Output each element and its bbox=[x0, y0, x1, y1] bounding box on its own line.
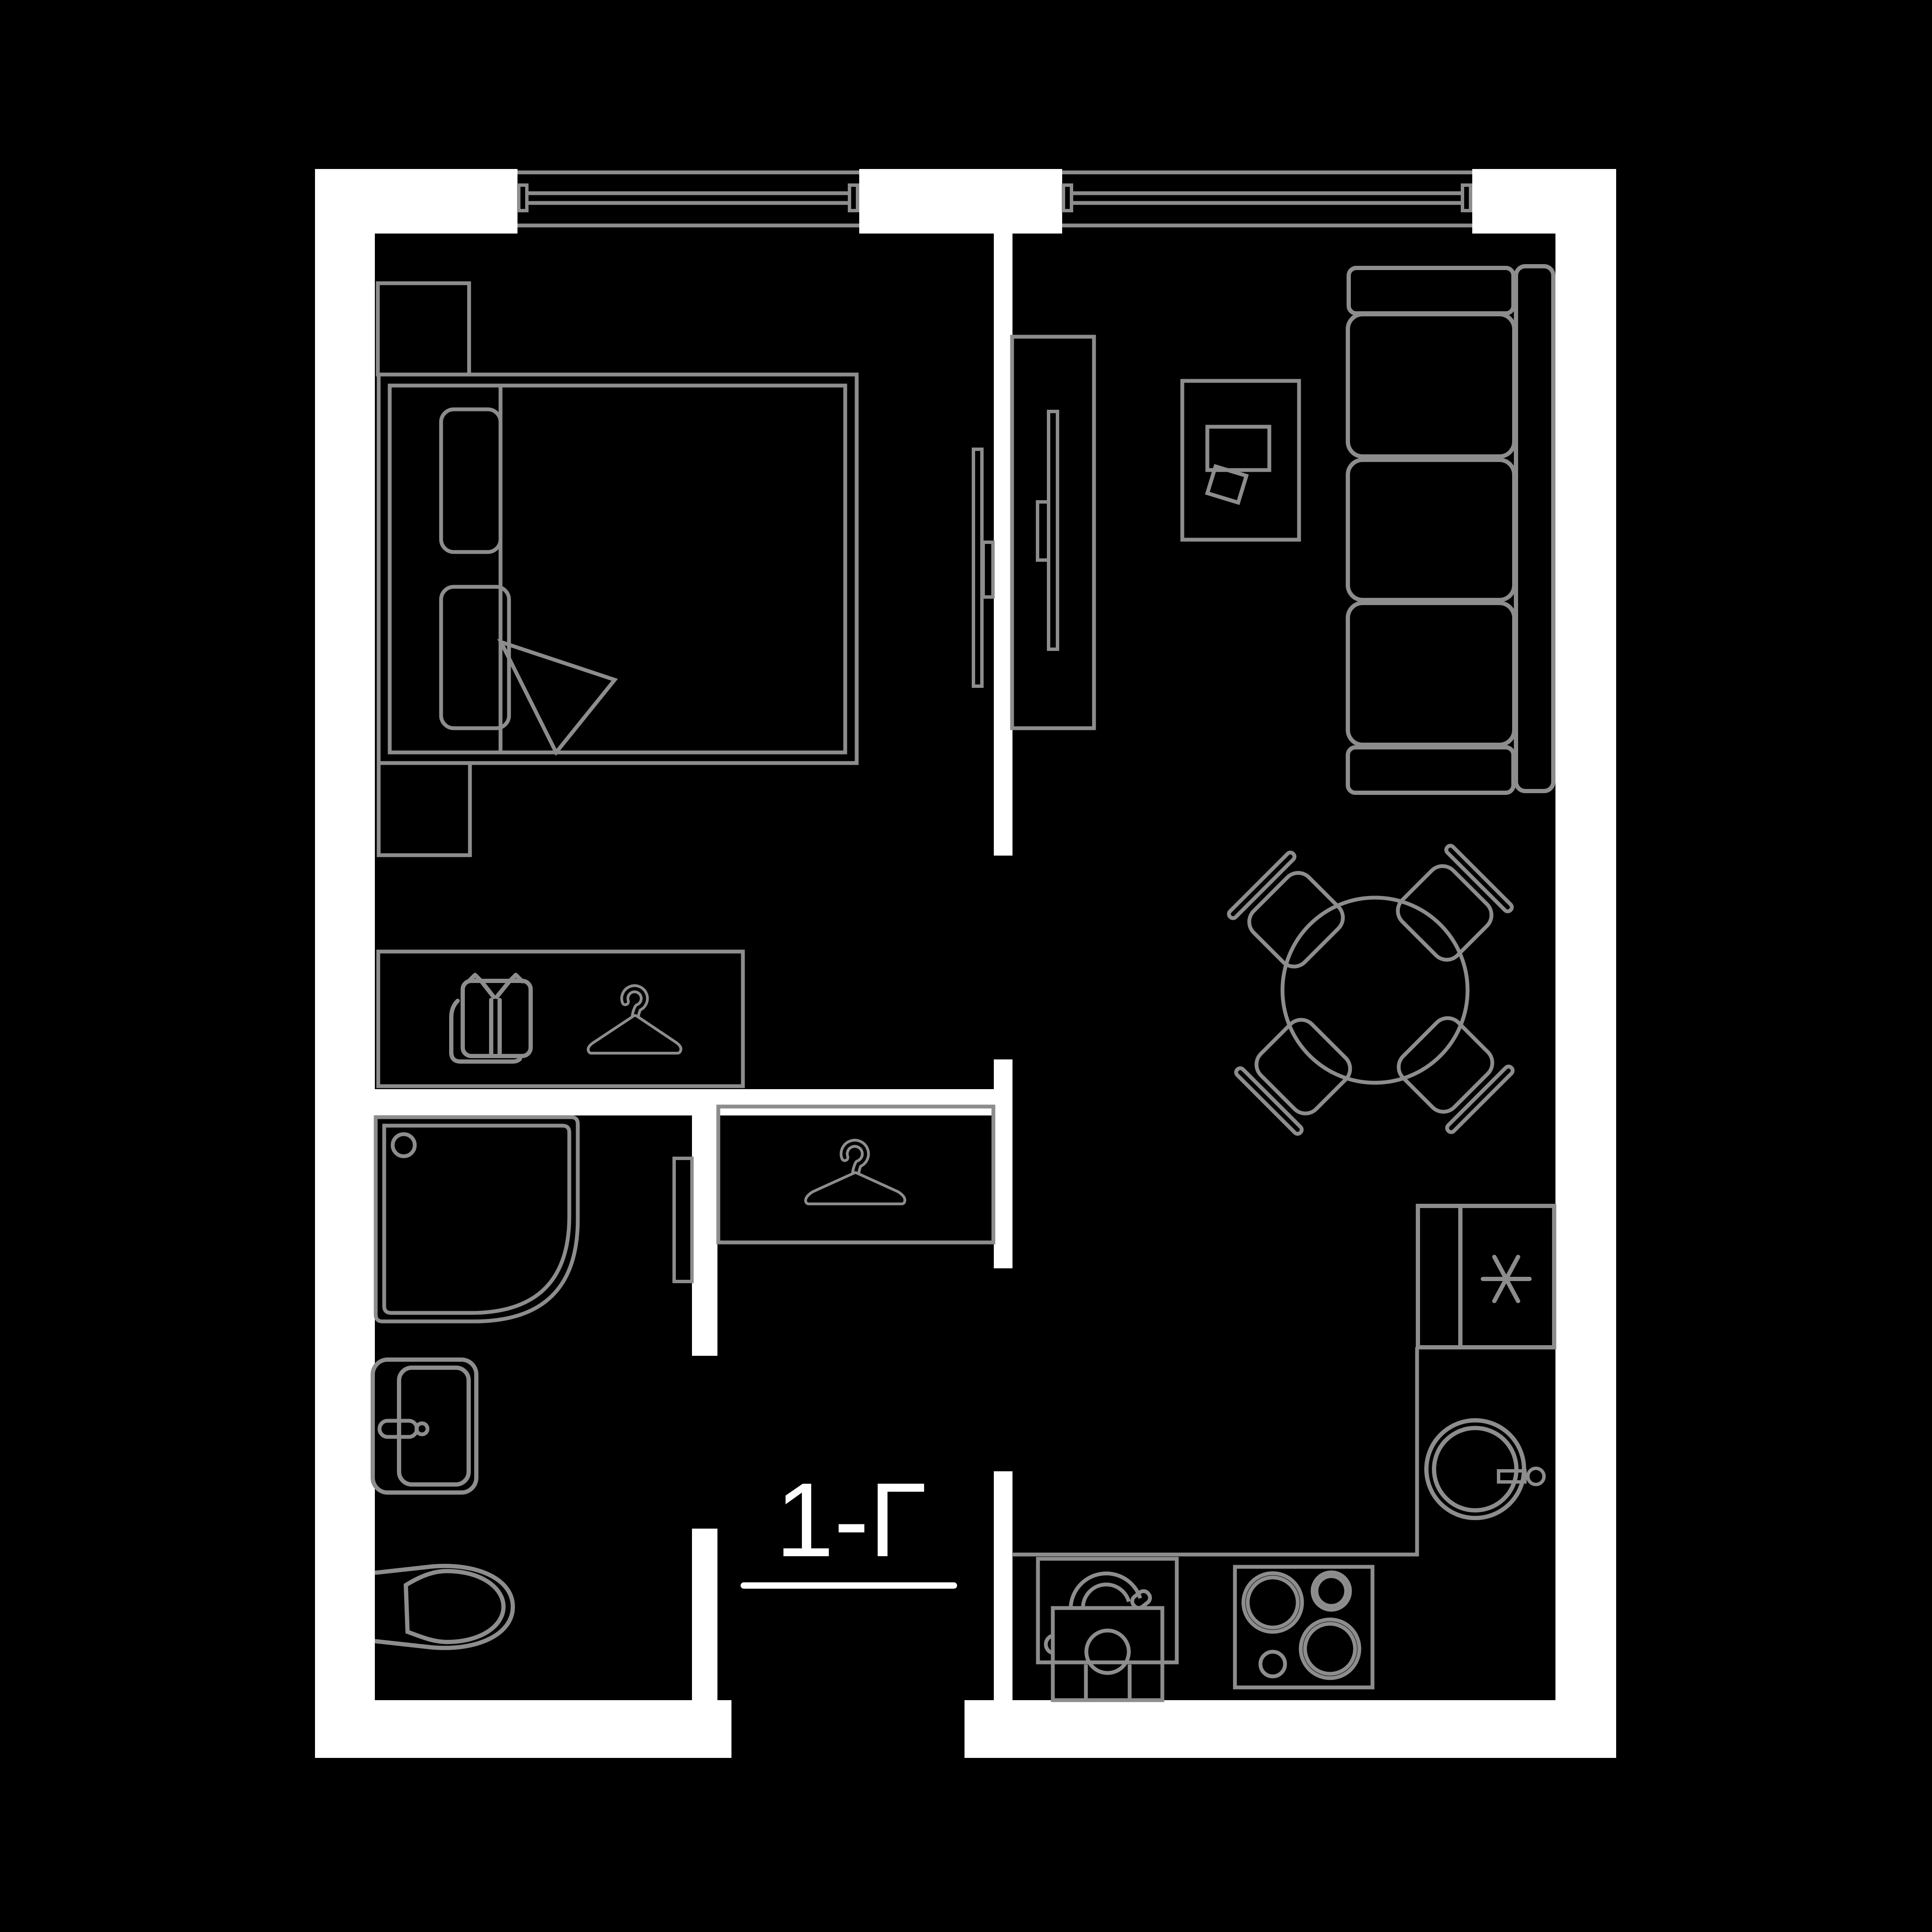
svg-text:1-Г: 1-Г bbox=[776, 1461, 926, 1579]
